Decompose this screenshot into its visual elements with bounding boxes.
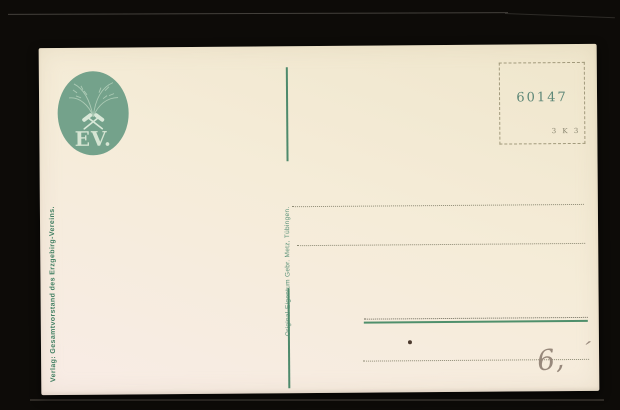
stamp-box-code: 3 K 3 (552, 127, 581, 135)
stamp-box-number: 60147 (500, 90, 584, 106)
ev-oval-logo-graphic: EV. (57, 70, 130, 156)
address-line-3-underline (364, 320, 588, 323)
frame-edge-top (8, 12, 508, 15)
frame-edge-bottom (30, 399, 604, 401)
photo-backdrop: EV. 60147 3 K 3 Verlag: Gesamtvorstand d… (0, 0, 620, 410)
ink-spot (408, 340, 412, 344)
frame-edge-top-right (505, 13, 615, 18)
logo-initials: EV. (75, 127, 112, 151)
ev-oval-logo: EV. (57, 70, 130, 156)
divider-line-top (286, 67, 288, 161)
address-line-2 (297, 243, 585, 246)
stamp-box: 60147 3 K 3 (499, 62, 586, 145)
pencil-handwriting: 6, (535, 342, 565, 378)
publisher-caption: Verlag: Gesamtvorstand des Erzgebirg-Ver… (49, 170, 58, 382)
address-line-1 (292, 204, 584, 207)
postcard-back: EV. 60147 3 K 3 Verlag: Gesamtvorstand d… (39, 44, 600, 395)
pencil-tick-mark: ′ (581, 338, 592, 363)
